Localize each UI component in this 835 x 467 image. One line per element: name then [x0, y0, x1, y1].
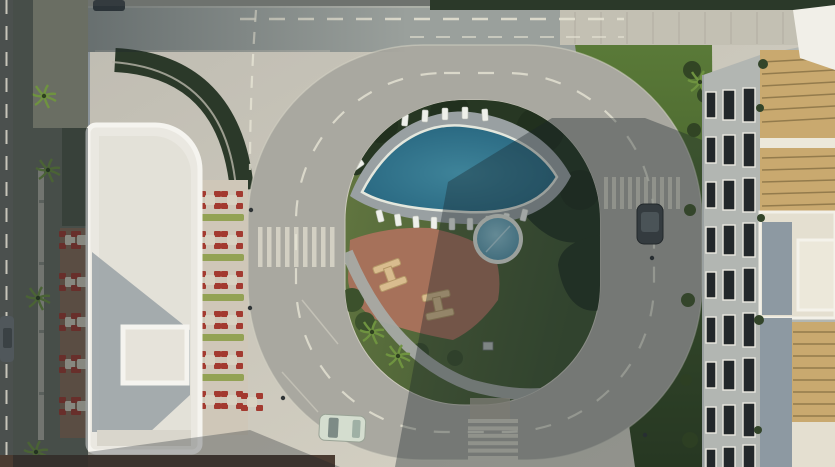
aerial-render [0, 0, 835, 467]
car-east [637, 204, 663, 244]
left-building [88, 125, 200, 452]
west-road [0, 0, 13, 467]
top-hedge [430, 0, 835, 10]
facade-windows [706, 88, 755, 467]
car-west [0, 316, 14, 362]
car-south [319, 414, 366, 442]
render-canvas [0, 0, 835, 467]
rooftop [754, 50, 835, 467]
east-building [680, 5, 835, 467]
roof-skylight [123, 327, 187, 383]
